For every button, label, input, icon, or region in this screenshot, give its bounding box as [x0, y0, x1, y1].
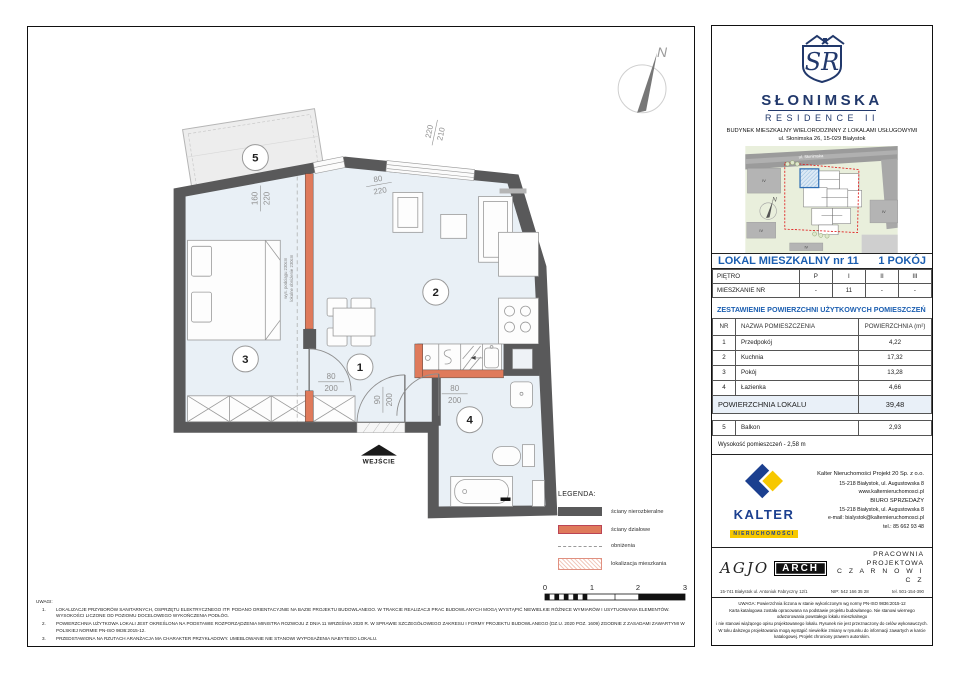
entrance-marker: WEJŚCIE — [361, 445, 397, 466]
apartment-number-row: MIESZKANIE NR - 11 - - — [713, 283, 932, 297]
unit-number: LOKAL MIESZKALNY nr 11 — [718, 255, 859, 267]
sink — [511, 382, 533, 408]
developer-website: www.kalternieruchomosci.pl — [808, 488, 924, 496]
arch-box: ARCH — [774, 561, 827, 576]
agjo-arch-logo: AGJO ARCH — [720, 559, 827, 577]
kalter-logo-icon — [741, 462, 787, 500]
svg-text:200: 200 — [385, 393, 394, 407]
building-address: ul. Słonimska 26, 15-029 Białystok — [712, 136, 932, 142]
legend-label: obniżenia — [611, 543, 635, 549]
architect-tel: tel. 501-154-390 — [892, 589, 924, 594]
plan-sheet: wys. podciągu 230cm lokalne obniżenie 23… — [27, 26, 695, 647]
floor-table: PIĘTRO P I II III MIESZKANIE NR - 11 - - — [712, 269, 932, 298]
architect-address: 15-741 Białystok ul. Antoniuk Fabryczny … — [720, 589, 808, 594]
legend-item-walls: ściany nierozbieralne — [558, 507, 690, 516]
entrance-threshold — [357, 423, 405, 433]
highlighted-unit — [800, 169, 819, 188]
svg-text:80: 80 — [450, 384, 459, 393]
room-number-2: 2 — [423, 279, 449, 305]
svg-text:IV: IV — [804, 246, 808, 250]
svg-text:IV: IV — [882, 210, 886, 214]
developer-block: KALTER NIERUCHOMOŚCI Kalter Nieruchomośc… — [712, 454, 932, 547]
legend-item-partitions: ściany działowe — [558, 525, 690, 534]
studio-name: PRACOWNIA PROJEKTOWA C Z A R N O W I C Z — [827, 551, 924, 586]
svg-text:IV: IV — [762, 179, 766, 183]
legend-swatch-partition — [558, 525, 602, 534]
developer-email: e-mail: bialystok@kalternieruchomosci.pl — [808, 514, 924, 522]
floor-row: PIĘTRO P I II III — [713, 269, 932, 283]
table-row: 2 Kuchnia 17,32 — [713, 350, 932, 365]
legend-swatch-wall — [558, 507, 602, 516]
compass-icon: N — [618, 44, 668, 113]
brand-subtitle: RESIDENCE II — [712, 113, 932, 123]
svg-text:3: 3 — [683, 583, 687, 592]
building-description: BUDYNEK MIESZKALNY WIELORODZINNY Z LOKAL… — [712, 128, 932, 134]
bath-cabinet — [532, 481, 544, 507]
table-row: 1 Przedpokój 4,22 — [713, 335, 932, 350]
dining-set — [327, 298, 375, 346]
brand-underline — [768, 110, 876, 111]
room-number-4: 4 — [457, 407, 483, 433]
brand-name: SŁONIMSKA — [712, 92, 932, 109]
developer-address: 15-218 Białystok, ul. Augustowska 8 — [808, 480, 924, 488]
unit-type: 1 POKÓJ — [878, 255, 926, 267]
svg-text:3: 3 — [242, 354, 248, 366]
legend-label: ściany nierozbieralne — [611, 509, 664, 515]
tub-faucet — [501, 497, 511, 500]
sales-office-label: BIURO SPRZEDAŻY — [808, 497, 924, 506]
svg-text:2: 2 — [636, 583, 640, 592]
svg-text:2: 2 — [433, 287, 439, 299]
toilet — [493, 447, 521, 466]
total-area-row: POWIERZCHNIA LOKALU 39,48 — [713, 395, 932, 413]
unit-title-row: LOKAL MIESZKALNY nr 11 1 POKÓJ — [712, 253, 932, 268]
architect-nip: NIP: 542 166 35 28 — [831, 589, 869, 594]
svg-text:220: 220 — [424, 124, 436, 139]
room-number-5: 5 — [242, 145, 268, 171]
svg-text:SR: SR — [805, 48, 840, 76]
svg-text:80: 80 — [327, 372, 336, 381]
site-map: ul. Słonimska IV IV IV IV N — [712, 146, 931, 253]
notes-title: UWAGI: — [36, 599, 686, 606]
balcony-table: 5 Balkon 2,93 — [712, 420, 932, 436]
developer-company: Kalter Nieruchomości Projekt 20 Sp. z o.… — [808, 470, 924, 479]
svg-text:4: 4 — [466, 415, 473, 427]
info-panel: SR SŁONIMSKA RESIDENCE II BUDYNEK MIESZK… — [711, 25, 933, 646]
brand-header: SR SŁONIMSKA RESIDENCE II BUDYNEK MIESZK… — [712, 26, 932, 146]
svg-text:90: 90 — [373, 395, 382, 404]
dim-window: 220 210 — [422, 118, 448, 148]
note-item: 3. PRZEDSTAWIONA NA RZUTACH ARANŻACJA MA… — [36, 636, 686, 643]
areas-table-header: NR NAZWA POMIESZCZENIA POWIERZCHNIA (m²) — [713, 318, 932, 335]
entrance-arrow-icon — [361, 445, 397, 456]
kalter-wordmark: KALTER — [720, 507, 808, 522]
svg-text:1: 1 — [590, 583, 594, 592]
legend-label: ściany działowe — [611, 527, 650, 533]
legend: LEGENDA: ściany nierozbieralne ściany dz… — [558, 491, 690, 579]
svg-text:200: 200 — [324, 384, 338, 393]
height-note: Wysokość pomieszczeń - 2,58 m — [712, 436, 932, 454]
room-number-1: 1 — [347, 354, 373, 380]
fineprint: UWAGA: Powierzchnia liczona w stanie wyk… — [712, 597, 932, 645]
areas-section-title: ZESTAWIENIE POWIERZCHNI UŻYTKOWYCH POMIE… — [712, 298, 932, 318]
legend-item-drops: obniżenia — [558, 543, 690, 549]
entrance-label: WEJŚCIE — [363, 457, 396, 466]
wardrobe-row — [188, 396, 355, 422]
svg-text:220: 220 — [262, 191, 271, 205]
developer-contact: Kalter Nieruchomości Projekt 20 Sp. z o.… — [808, 470, 924, 531]
sales-office-address: 15-218 Białystok, ul. Augustowska 8 — [808, 506, 924, 514]
table-row: 5 Balkon 2,93 — [713, 420, 932, 435]
bed — [188, 240, 281, 340]
developer-phone: tel.: 85 662 93 48 — [808, 523, 924, 531]
kalter-logo: KALTER NIERUCHOMOŚCI — [720, 462, 808, 540]
plan-annotation: wys. podciągu 230cm lokalne obniżenie 23… — [283, 254, 294, 301]
note-item: 2. POWIERZCHNIA UŻYTKOWA LOKALI JEST OKR… — [36, 621, 686, 635]
legend-swatch-dashed — [558, 546, 602, 547]
annotation-line2: lokalne obniżenie 230cm — [289, 254, 294, 301]
agjo-script: AGJO — [720, 559, 769, 577]
radiator — [500, 188, 527, 193]
legend-item-location: lokalizacja mieszkania — [558, 558, 690, 570]
svg-text:0: 0 — [543, 583, 547, 592]
svg-text:200: 200 — [448, 396, 462, 405]
table-row: 3 Pokój 13,28 — [713, 365, 932, 380]
legend-label: lokalizacja mieszkania — [611, 561, 666, 567]
svg-text:IV: IV — [759, 229, 763, 233]
note-item: 1. LOKALIZACJE PRZYBORÓW SANITARNYCH, OS… — [36, 607, 686, 621]
compass-north-label: N — [657, 44, 668, 60]
notes: UWAGI: 1. LOKALIZACJE PRZYBORÓW SANITARN… — [36, 599, 686, 643]
svg-text:160: 160 — [250, 191, 259, 205]
room-number-3: 3 — [232, 346, 258, 372]
legend-title: LEGENDA: — [558, 491, 690, 498]
table-row: 4 Łazienka 4,66 — [713, 380, 932, 395]
svg-text:N: N — [772, 196, 777, 203]
toilet-tank — [522, 445, 534, 467]
architect-block: AGJO ARCH PRACOWNIA PROJEKTOWA C Z A R N… — [712, 547, 932, 587]
svg-text:5: 5 — [252, 153, 259, 165]
legend-swatch-hatch — [558, 558, 602, 570]
sr-logo-icon: SR — [790, 33, 854, 85]
svg-text:210: 210 — [435, 126, 447, 141]
kalter-tagline: NIERUCHOMOŚCI — [730, 530, 797, 538]
architect-contact-row: 15-741 Białystok ul. Antoniuk Fabryczny … — [712, 587, 932, 597]
svg-text:1: 1 — [357, 362, 364, 374]
annotation-line1: wys. podciągu 230cm — [283, 257, 288, 298]
areas-table: NR NAZWA POMIESZCZENIA POWIERZCHNIA (m²)… — [712, 318, 932, 414]
